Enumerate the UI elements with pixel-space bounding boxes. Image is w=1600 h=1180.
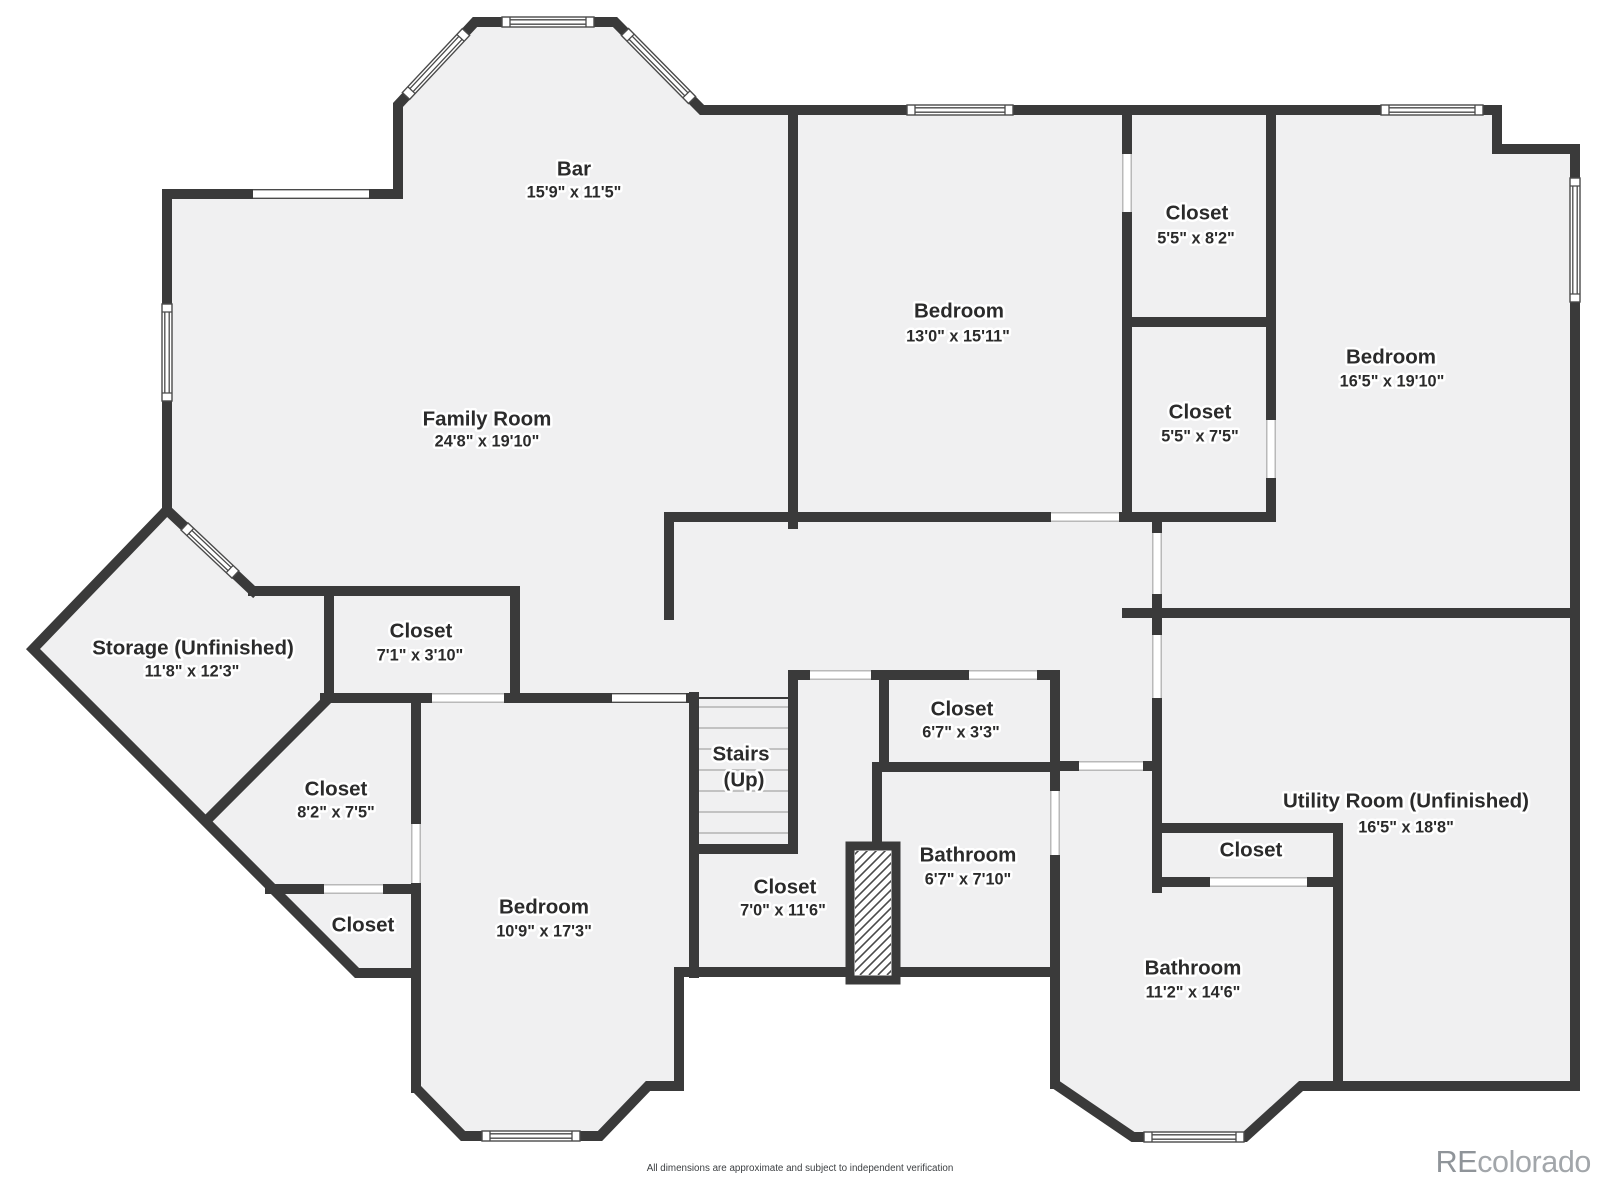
svg-text:Closet: Closet — [390, 619, 453, 642]
svg-text:Closet: Closet — [305, 777, 368, 800]
svg-text:Bathroom: Bathroom — [920, 843, 1017, 866]
svg-text:5'5" x 7'5": 5'5" x 7'5" — [1161, 427, 1239, 445]
svg-text:6'7" x 7'10": 6'7" x 7'10" — [925, 870, 1012, 888]
svg-text:Bedroom: Bedroom — [499, 895, 589, 918]
svg-text:15'9" x 11'5": 15'9" x 11'5" — [527, 183, 622, 201]
svg-text:16'5" x 18'8": 16'5" x 18'8" — [1358, 818, 1454, 836]
svg-text:16'5" x 19'10": 16'5" x 19'10" — [1340, 372, 1445, 390]
svg-text:Bar: Bar — [557, 157, 591, 180]
svg-text:7'0" x 11'6": 7'0" x 11'6" — [740, 901, 826, 919]
svg-text:11'8" x 12'3": 11'8" x 12'3" — [145, 662, 240, 680]
svg-text:Bathroom: Bathroom — [1145, 956, 1242, 979]
svg-text:Closet: Closet — [1220, 838, 1283, 861]
svg-text:11'2" x 14'6": 11'2" x 14'6" — [1146, 983, 1241, 1001]
svg-text:Closet: Closet — [1169, 400, 1232, 423]
svg-text:Utility Room (Unfinished): Utility Room (Unfinished) — [1283, 789, 1529, 812]
svg-text:8'2" x 7'5": 8'2" x 7'5" — [297, 803, 375, 821]
svg-text:Family Room: Family Room — [423, 407, 552, 430]
svg-text:7'1" x 3'10": 7'1" x 3'10" — [377, 646, 464, 664]
svg-text:6'7" x 3'3": 6'7" x 3'3" — [922, 723, 1000, 741]
svg-text:10'9" x 17'3": 10'9" x 17'3" — [496, 922, 592, 940]
svg-text:Stairs: Stairs — [713, 742, 770, 765]
svg-text:REcolorado: REcolorado — [1436, 1145, 1591, 1179]
svg-text:Closet: Closet — [332, 913, 395, 936]
svg-text:5'5" x 8'2": 5'5" x 8'2" — [1157, 229, 1235, 247]
svg-text:24'8" x 19'10": 24'8" x 19'10" — [435, 432, 540, 450]
svg-text:Closet: Closet — [754, 875, 817, 898]
svg-text:Closet: Closet — [1166, 201, 1229, 224]
svg-text:13'0" x 15'11": 13'0" x 15'11" — [906, 327, 1010, 345]
svg-text:Bedroom: Bedroom — [1346, 345, 1436, 368]
svg-text:Bedroom: Bedroom — [914, 299, 1004, 322]
svg-text:(Up): (Up) — [724, 768, 765, 791]
svg-text:All dimensions are approximate: All dimensions are approximate and subje… — [647, 1163, 954, 1174]
svg-text:Storage (Unfinished): Storage (Unfinished) — [92, 636, 294, 659]
svg-text:Closet: Closet — [931, 697, 994, 720]
